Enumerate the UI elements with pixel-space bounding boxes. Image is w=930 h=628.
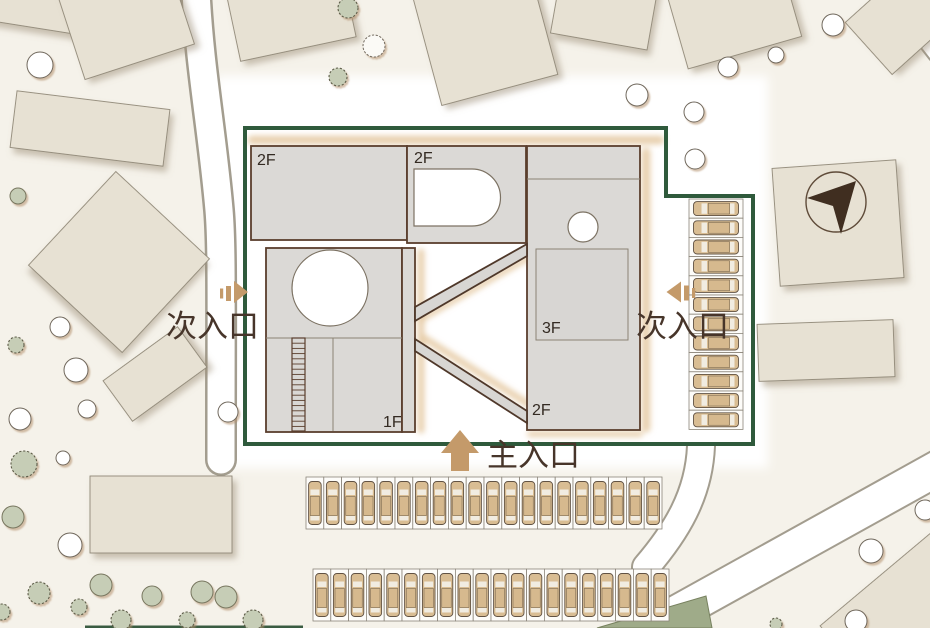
car-roof [381, 497, 390, 516]
site-plan-map: 2F 2F 3F 2F 1F 主入口 次入口 次入口 [0, 0, 930, 628]
tree-icon [58, 533, 82, 557]
car-windshield [488, 490, 497, 496]
tree-icon [28, 582, 50, 604]
floor-label-3f: 3F [542, 320, 561, 337]
car-rear-window [531, 608, 540, 613]
car-windshield [531, 582, 540, 588]
car-windshield [371, 582, 380, 588]
car-windshield [495, 582, 504, 588]
tree-icon [822, 14, 844, 36]
tree-icon [718, 57, 738, 77]
stairs-hatch [292, 338, 305, 431]
right-entrance-arrow-icon [692, 288, 695, 298]
car-rear-window [435, 516, 444, 521]
tree-icon [10, 188, 26, 204]
tree-icon [363, 35, 385, 57]
car-roof [577, 497, 586, 516]
car-windshield [328, 490, 337, 496]
car-roof [417, 497, 426, 516]
car-windshield [364, 490, 373, 496]
car-rear-window [328, 516, 337, 521]
car-rear-window [730, 223, 735, 233]
floor-label-2f-top-left: 2F [257, 152, 276, 169]
car-rear-window [730, 203, 735, 213]
tree-icon [71, 599, 87, 615]
tree-icon [56, 451, 70, 465]
tree-icon [50, 317, 70, 337]
car-rear-window [730, 261, 735, 271]
car-rear-window [656, 608, 665, 613]
car-windshield [460, 582, 469, 588]
car-roof [346, 497, 355, 516]
parking-row-bottom-row-1 [306, 477, 662, 529]
car-windshield [524, 490, 533, 496]
car-rear-window [631, 516, 640, 521]
car-roof [595, 497, 604, 516]
tree-icon [8, 337, 24, 353]
car-roof [709, 261, 730, 272]
car-roof [435, 497, 444, 516]
car-roof [488, 497, 497, 516]
left-entrance-arrow-icon [220, 289, 223, 299]
car-rear-window [730, 357, 735, 367]
tree-icon [27, 52, 53, 78]
car-roof [648, 497, 657, 516]
car-rear-window [389, 608, 398, 613]
car-roof [638, 589, 647, 608]
car-roof [631, 497, 640, 516]
car-rear-window [620, 608, 629, 613]
car-windshield [702, 242, 708, 252]
floor-label-2f-top-middle: 2F [414, 150, 433, 167]
stadium-courtyard [414, 169, 501, 226]
tree-icon [218, 402, 238, 422]
car-windshield [399, 490, 408, 496]
tree-icon [329, 68, 347, 86]
car-windshield [620, 582, 629, 588]
car-rear-window [495, 608, 504, 613]
car-windshield [549, 582, 558, 588]
car-rear-window [524, 516, 533, 521]
car-roof [709, 376, 730, 387]
courtyard-west-strip [402, 248, 415, 432]
car-roof [399, 497, 408, 516]
car-windshield [353, 582, 362, 588]
car-rear-window [730, 242, 735, 252]
car-roof [317, 589, 326, 608]
right-entrance-label: 次入口 [636, 309, 729, 344]
car-rear-window [346, 516, 355, 521]
car-windshield [702, 376, 708, 386]
car-rear-window [730, 299, 735, 309]
car-windshield [317, 582, 326, 588]
car-windshield [471, 490, 480, 496]
car-roof [559, 497, 568, 516]
car-windshield [702, 357, 708, 367]
car-roof [549, 589, 558, 608]
car-roof [364, 497, 373, 516]
car-windshield [542, 490, 551, 496]
car-windshield [389, 582, 398, 588]
car-rear-window [730, 319, 735, 329]
car-rear-window [335, 608, 344, 613]
car-windshield [702, 395, 708, 405]
round-courtyard [292, 250, 368, 326]
car-rear-window [730, 338, 735, 348]
tree-icon [9, 408, 31, 430]
car-roof [513, 589, 522, 608]
car-roof [709, 222, 730, 233]
car-windshield [631, 490, 640, 496]
floor-label-2f-right: 2F [532, 402, 551, 419]
car-windshield [702, 415, 708, 425]
tree-icon [191, 581, 213, 603]
car-roof [388, 589, 397, 608]
car-rear-window [638, 608, 647, 613]
car-roof [442, 589, 451, 608]
car-rear-window [613, 516, 622, 521]
car-windshield [560, 490, 569, 496]
car-rear-window [488, 516, 497, 521]
car-windshield [577, 490, 586, 496]
car-windshield [335, 582, 344, 588]
car-roof [709, 242, 730, 253]
car-roof [620, 589, 629, 608]
main-entrance-label: 主入口 [487, 438, 580, 473]
car-windshield [702, 223, 708, 233]
car-roof [613, 497, 622, 516]
car-rear-window [364, 516, 373, 521]
car-rear-window [317, 608, 326, 613]
right-entrance-arrow-icon [684, 286, 689, 301]
car-roof [371, 589, 380, 608]
car-roof [495, 589, 504, 608]
tree-icon [179, 612, 195, 628]
car-roof [531, 589, 540, 608]
car-rear-window [382, 516, 391, 521]
tree-icon [11, 451, 37, 477]
car-roof [524, 497, 533, 516]
tree-icon [90, 574, 112, 596]
tree-icon [859, 539, 883, 563]
car-windshield [656, 582, 665, 588]
car-rear-window [506, 516, 515, 521]
main-entrance-arrow-shaft [451, 453, 469, 471]
car-roof [542, 497, 551, 516]
car-rear-window [595, 516, 604, 521]
car-windshield [346, 490, 355, 496]
car-windshield [478, 582, 487, 588]
car-roof [310, 497, 319, 516]
car-roof [655, 589, 664, 608]
car-rear-window [353, 608, 362, 613]
car-roof [709, 280, 730, 291]
car-rear-window [310, 516, 319, 521]
tree-icon [684, 102, 704, 122]
tree-icon [215, 586, 237, 608]
car-rear-window [549, 608, 558, 613]
car-windshield [595, 490, 604, 496]
tree-icon [142, 586, 162, 606]
small-round-courtyard [568, 212, 598, 242]
car-rear-window [560, 516, 569, 521]
car-rear-window [442, 608, 451, 613]
car-rear-window [460, 608, 469, 613]
tree-icon [2, 506, 24, 528]
tree-icon [64, 358, 88, 382]
tree-icon [626, 84, 648, 106]
car-roof [460, 589, 469, 608]
floor-label-1f: 1F [383, 414, 402, 431]
car-rear-window [730, 395, 735, 405]
car-windshield [584, 582, 593, 588]
context-building [90, 476, 232, 553]
car-windshield [424, 582, 433, 588]
car-windshield [442, 582, 451, 588]
site-plan: 2F 2F 3F 2F 1F 主入口 次入口 次入口 [0, 0, 930, 628]
car-roof [584, 589, 593, 608]
car-rear-window [649, 516, 658, 521]
car-rear-window [371, 608, 380, 613]
car-windshield [506, 490, 515, 496]
car-roof [328, 497, 337, 516]
car-roof [602, 589, 611, 608]
car-roof [470, 497, 479, 516]
tree-icon [845, 610, 867, 628]
tree-icon [685, 149, 705, 169]
car-roof [709, 203, 730, 214]
car-windshield [567, 582, 576, 588]
car-roof [709, 357, 730, 368]
car-rear-window [584, 608, 593, 613]
car-rear-window [730, 376, 735, 386]
car-windshield [649, 490, 658, 496]
car-rear-window [406, 608, 415, 613]
car-windshield [435, 490, 444, 496]
car-rear-window [471, 516, 480, 521]
car-rear-window [399, 516, 408, 521]
car-windshield [453, 490, 462, 496]
car-rear-window [730, 280, 735, 290]
car-roof [453, 497, 462, 516]
left-entrance-arrow-icon [226, 286, 231, 301]
left-entrance-label: 次入口 [166, 309, 259, 344]
car-roof [353, 589, 362, 608]
car-windshield [613, 490, 622, 496]
car-rear-window [417, 516, 426, 521]
car-windshield [382, 490, 391, 496]
car-rear-window [513, 608, 522, 613]
tree-icon [78, 400, 96, 418]
parking-row-bottom-row-2 [313, 569, 669, 621]
car-roof [506, 497, 515, 516]
tree-icon [768, 47, 784, 63]
car-windshield [310, 490, 319, 496]
tree-icon [915, 500, 930, 520]
car-roof [406, 589, 415, 608]
car-rear-window [453, 516, 462, 521]
car-windshield [513, 582, 522, 588]
car-rear-window [542, 516, 551, 521]
car-windshield [602, 582, 611, 588]
car-windshield [417, 490, 426, 496]
car-windshield [702, 261, 708, 271]
car-rear-window [478, 608, 487, 613]
car-rear-window [602, 608, 611, 613]
car-windshield [702, 203, 708, 213]
car-roof [424, 589, 433, 608]
car-rear-window [730, 415, 735, 425]
context-building [757, 320, 895, 382]
car-windshield [638, 582, 647, 588]
car-rear-window [424, 608, 433, 613]
car-roof [709, 395, 730, 406]
car-rear-window [567, 608, 576, 613]
car-roof [709, 414, 730, 425]
car-roof [566, 589, 575, 608]
car-windshield [702, 280, 708, 290]
car-rear-window [577, 516, 586, 521]
car-roof [335, 589, 344, 608]
car-roof [477, 589, 486, 608]
car-windshield [406, 582, 415, 588]
